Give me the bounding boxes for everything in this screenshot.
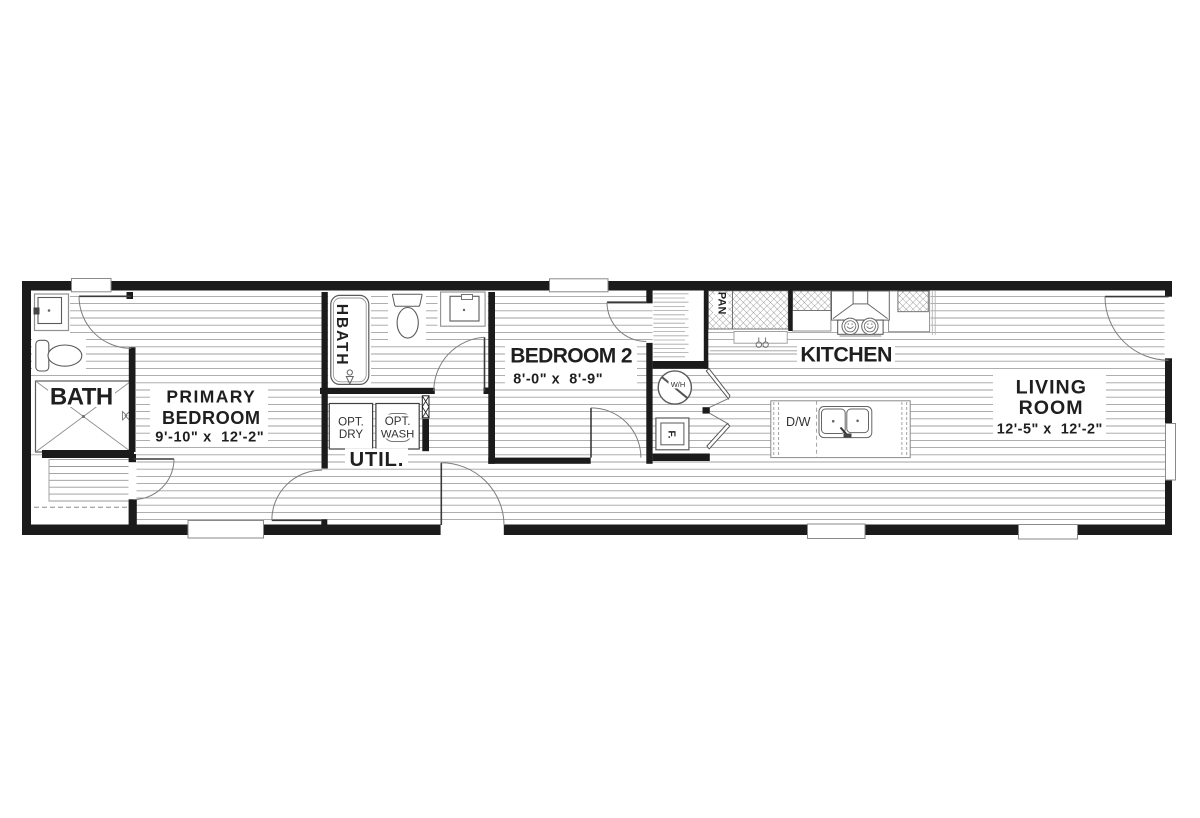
- svg-text:OPT.: OPT.: [385, 415, 411, 428]
- svg-text:KITCHEN: KITCHEN: [800, 343, 892, 367]
- svg-text:BEDROOM 2: BEDROOM 2: [510, 344, 632, 367]
- svg-text:PRIMARY: PRIMARY: [166, 387, 256, 407]
- svg-text:OPT.: OPT.: [338, 416, 364, 429]
- svg-text:8'-0" x 8'-9": 8'-0" x 8'-9": [513, 371, 603, 387]
- svg-text:HBATH: HBATH: [333, 304, 350, 367]
- svg-text:D/W: D/W: [786, 415, 811, 429]
- svg-text:LIVING: LIVING: [1016, 376, 1087, 398]
- svg-text:12'-5" x 12'-2": 12'-5" x 12'-2": [997, 422, 1103, 438]
- svg-text:BATH: BATH: [50, 384, 113, 411]
- svg-text:9'-10" x 12'-2": 9'-10" x 12'-2": [155, 429, 264, 445]
- svg-text:W/H: W/H: [671, 380, 686, 389]
- svg-text:PAN: PAN: [716, 292, 728, 315]
- svg-text:BEDROOM: BEDROOM: [162, 408, 260, 428]
- svg-text:ROOM: ROOM: [1019, 397, 1084, 419]
- svg-text:DRY: DRY: [339, 428, 364, 441]
- svg-text:UTIL.: UTIL.: [349, 449, 404, 471]
- svg-text:WASH: WASH: [381, 429, 414, 441]
- svg-text:F.: F.: [666, 430, 678, 438]
